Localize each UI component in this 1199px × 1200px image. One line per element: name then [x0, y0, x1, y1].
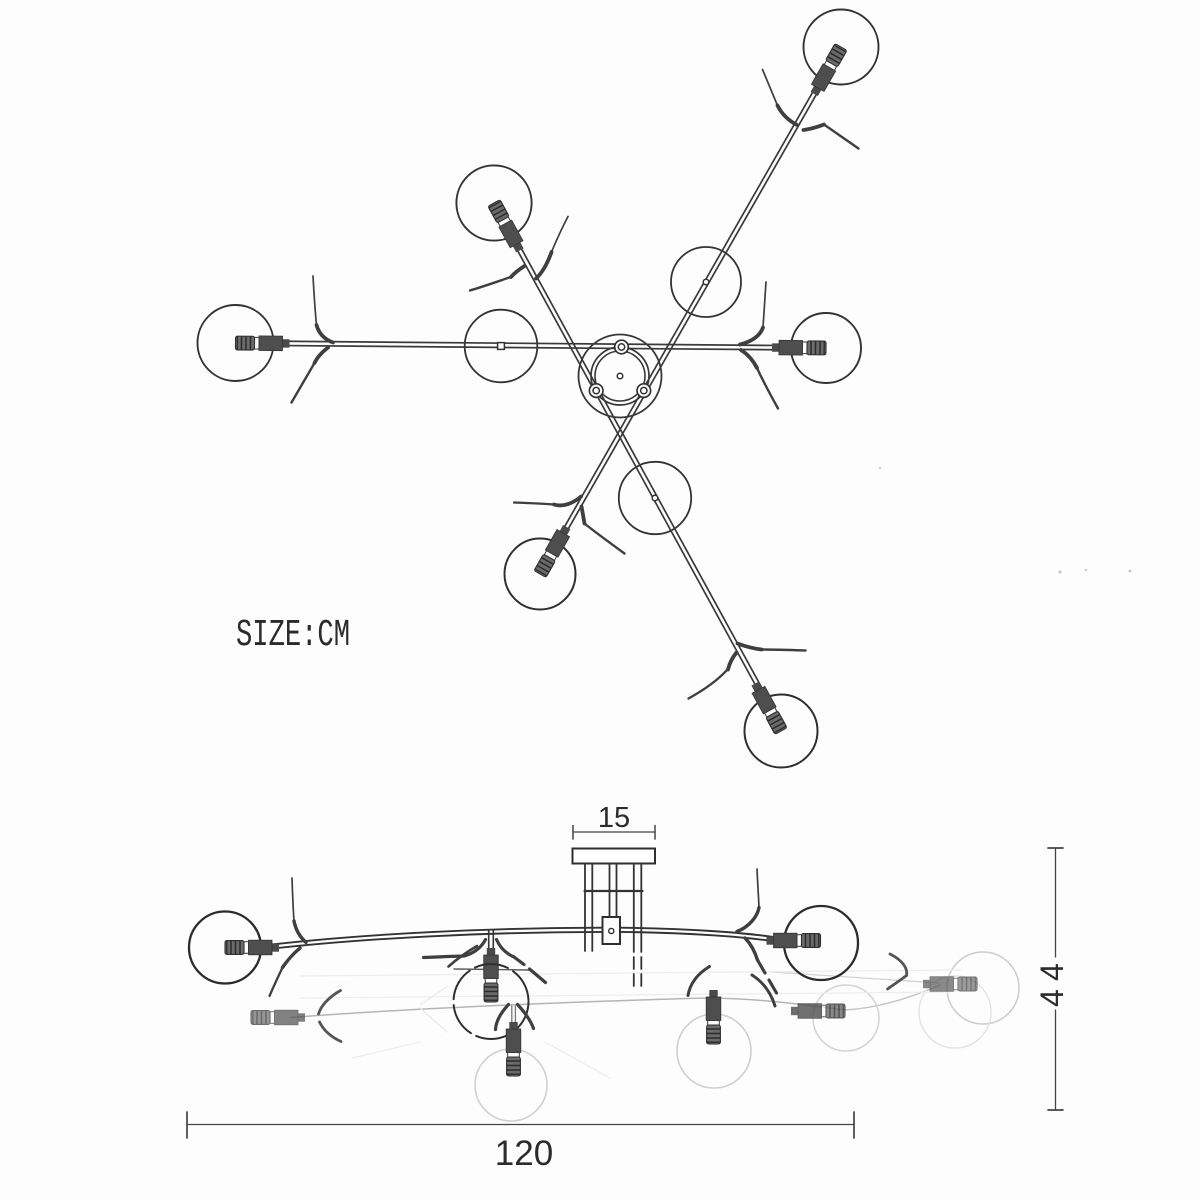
svg-text:120: 120 — [495, 1134, 553, 1173]
svg-text:15: 15 — [598, 802, 630, 834]
svg-text:SIZE:CM: SIZE:CM — [236, 614, 350, 657]
